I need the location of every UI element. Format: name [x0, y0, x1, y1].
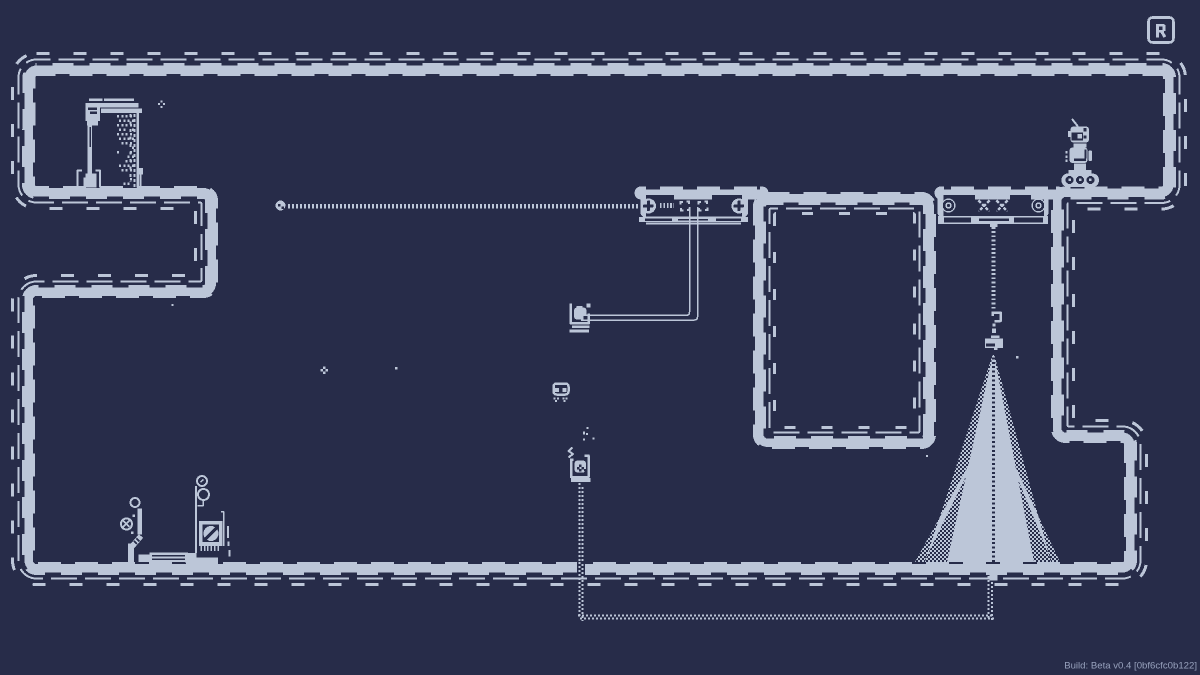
svg-text:Build: Beta v0.4 [0bf6cfc0b122: Build: Beta v0.4 [0bf6cfc0b122] — [1064, 661, 1197, 672]
